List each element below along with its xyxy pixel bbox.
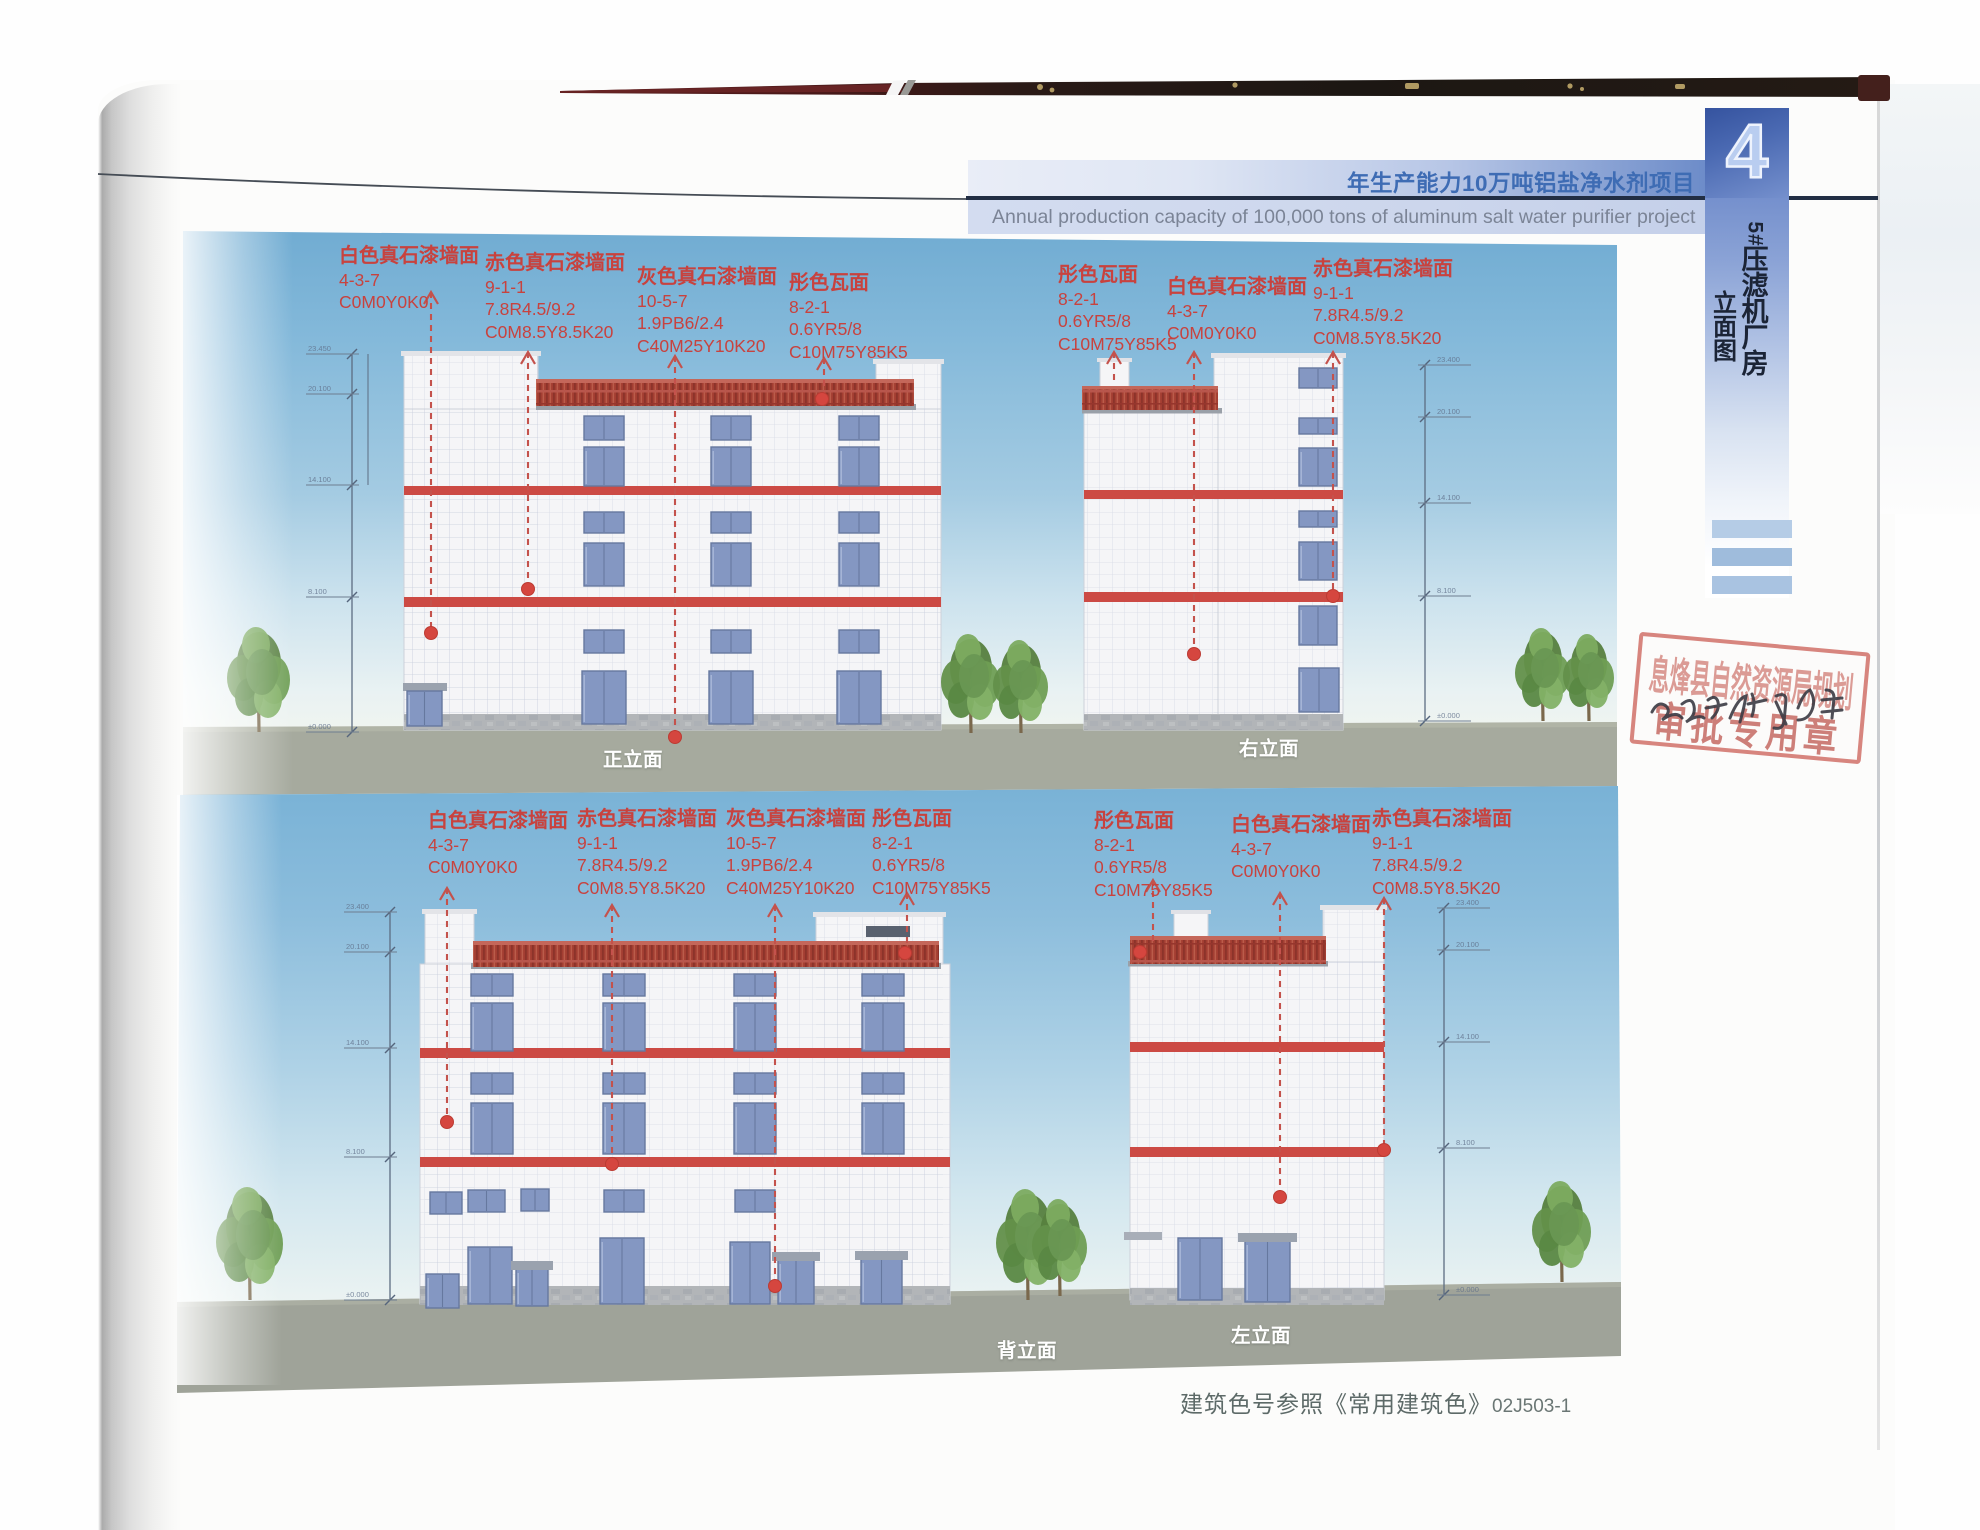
svg-text:23.400: 23.400 <box>1456 898 1479 907</box>
svg-text:20.100: 20.100 <box>346 942 369 951</box>
svg-text:±0.000: ±0.000 <box>1437 711 1460 720</box>
svg-text:±0.000: ±0.000 <box>1456 1285 1479 1294</box>
svg-text:23.450: 23.450 <box>308 344 331 353</box>
svg-text:14.100: 14.100 <box>1456 1032 1479 1041</box>
svg-text:8.100: 8.100 <box>308 587 327 596</box>
svg-text:20.100: 20.100 <box>1437 407 1460 416</box>
svg-text:8.100: 8.100 <box>346 1147 365 1156</box>
svg-text:23.400: 23.400 <box>346 902 369 911</box>
svg-text:20.100: 20.100 <box>308 384 331 393</box>
svg-text:14.100: 14.100 <box>1437 493 1460 502</box>
svg-text:20.100: 20.100 <box>1456 940 1479 949</box>
svg-text:8.100: 8.100 <box>1437 586 1456 595</box>
svg-text:±0.000: ±0.000 <box>346 1290 369 1299</box>
svg-text:23.400: 23.400 <box>1437 355 1460 364</box>
svg-text:14.100: 14.100 <box>308 475 331 484</box>
svg-text:±0.000: ±0.000 <box>308 722 331 731</box>
svg-text:8.100: 8.100 <box>1456 1138 1475 1147</box>
svg-text:14.100: 14.100 <box>346 1038 369 1047</box>
